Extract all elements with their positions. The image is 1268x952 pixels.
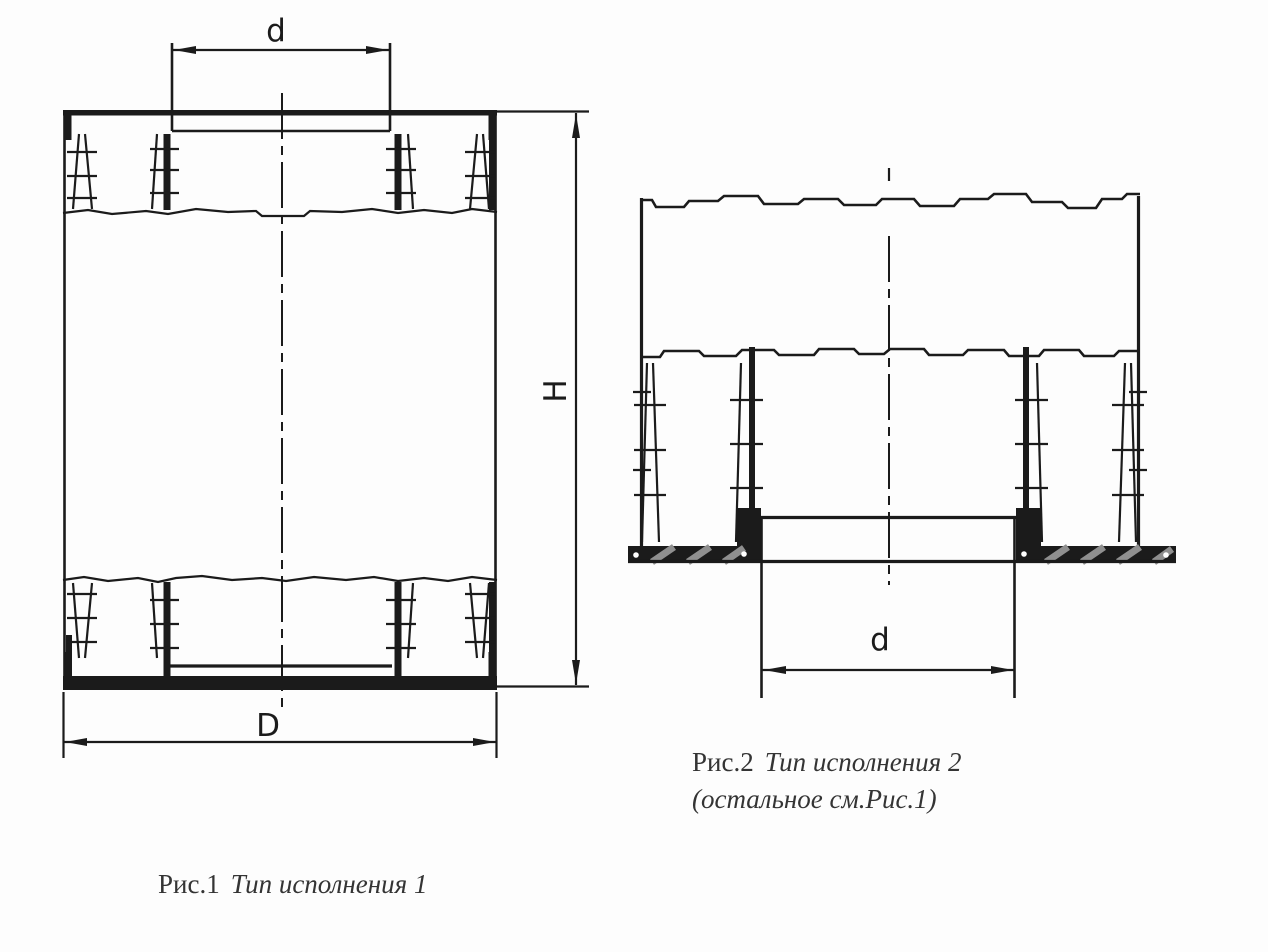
fig1-dim-label-d: d (266, 13, 286, 49)
figure2-caption-title: Тип исполнения 2 (765, 747, 962, 777)
fig1-dim-d: d (172, 13, 390, 54)
technical-drawing-page: d H D (0, 0, 1268, 952)
fig1-dim-label-D: D (256, 708, 280, 744)
fig1-dim-D: D (63, 692, 497, 758)
figure2-caption-note: (остальное см.Рис.1) (692, 784, 937, 814)
figure1-caption-title: Тип исполнения 1 (231, 869, 428, 899)
figure2-caption: Рис.2Тип исполнения 2 (остальное см.Рис.… (692, 744, 961, 818)
figure2-drawing: d (628, 168, 1176, 698)
figure2-caption-label: Рис.2 (692, 747, 754, 777)
fig1-dim-label-H: H (538, 379, 574, 402)
fig1-dim-H: H (497, 112, 589, 687)
figure1-drawing: d H D (63, 13, 589, 758)
figure1-caption: Рис.1Тип исполнения 1 (158, 869, 427, 900)
drawing-canvas: d H D (0, 0, 1268, 952)
fig2-dim-label-d: d (870, 622, 890, 658)
fig2-dim-d: d (762, 622, 1015, 674)
figure1-caption-label: Рис.1 (158, 869, 220, 899)
fig1-outline (63, 43, 497, 690)
